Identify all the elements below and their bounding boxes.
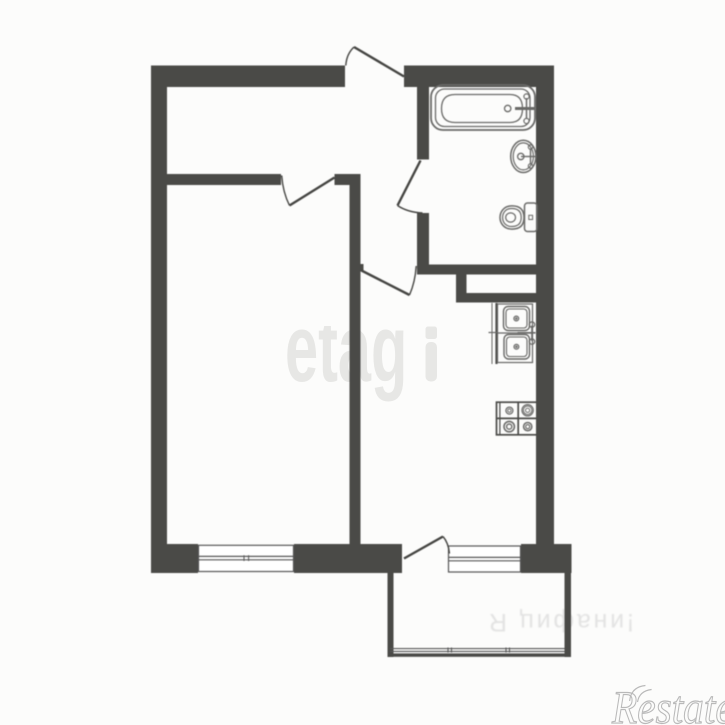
svg-text:!инафиц R: !инафиц R — [486, 608, 634, 636]
svg-text:Restate: Restate — [611, 682, 725, 725]
